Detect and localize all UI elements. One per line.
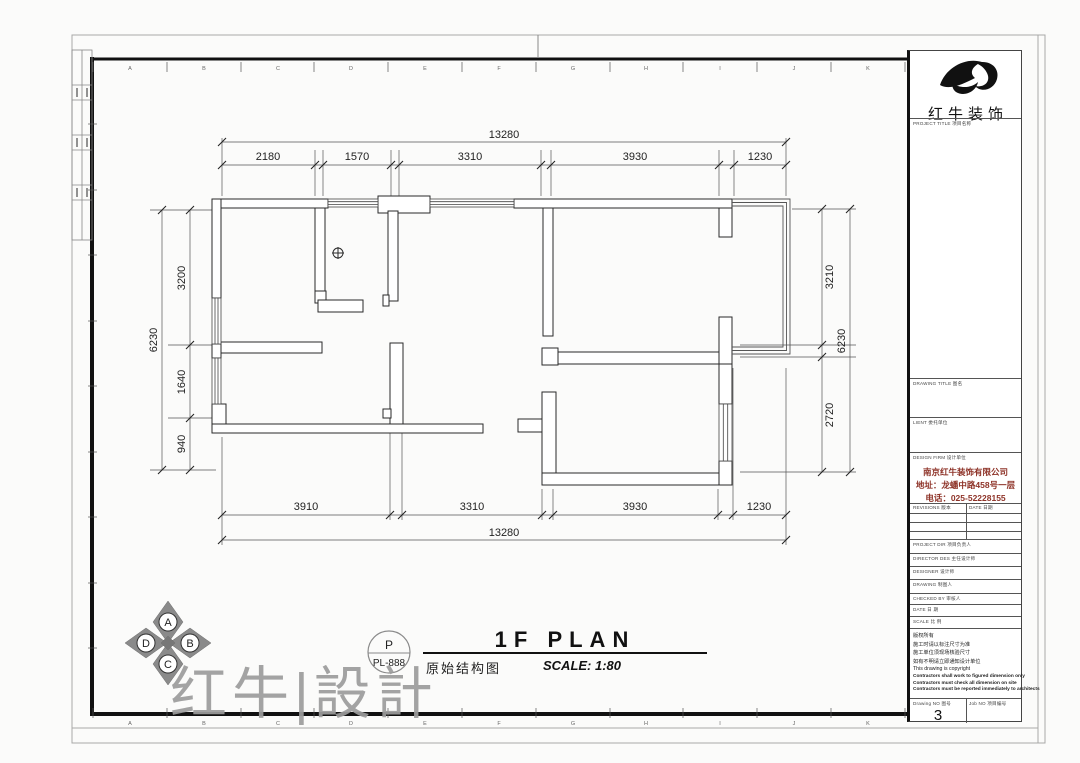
drawing-name: 原始结构图 — [426, 658, 501, 677]
window-top-1 — [328, 199, 378, 207]
dim-bottom-1: 3310 — [460, 501, 484, 513]
window-left-1 — [212, 298, 221, 344]
border-letters-top: A B C D E F G H I J K — [128, 66, 870, 72]
plan-scale: SCALE: 1:80 — [543, 658, 703, 673]
dim-top-2: 3310 — [458, 151, 482, 163]
svg-text:I: I — [719, 66, 721, 72]
dim-bottom-0: 3910 — [294, 501, 318, 513]
director-label: DIRECTOR DES 主任设计师 — [913, 556, 975, 562]
svg-text:E: E — [423, 66, 427, 72]
dim-top-0: 2180 — [256, 151, 280, 163]
svg-text:G: G — [571, 66, 575, 72]
company-name: 南京红牛装饰有限公司 — [910, 466, 1021, 478]
svg-text:J: J — [793, 721, 796, 727]
window-top-2 — [430, 199, 514, 207]
note-line: This drawing is copyright — [913, 666, 1021, 672]
watermark-text: 红牛|設計 — [170, 648, 438, 730]
dim-bottom-3: 1230 — [747, 501, 771, 513]
client-label: LIENT 委托单位 — [913, 420, 948, 426]
note-line: Contractors must be reported immediately… — [913, 687, 1021, 692]
note-line: 施工单位须现场核验尺寸 — [913, 649, 1021, 656]
company-address: 地址：龙蟠中路458号一层 — [910, 479, 1021, 491]
svg-text:I: I — [719, 721, 721, 727]
svg-text:H: H — [644, 66, 648, 72]
dim-right-1: 2720 — [824, 403, 836, 427]
svg-text:F: F — [497, 66, 501, 72]
dim-right-total: 6230 — [836, 329, 848, 353]
date-col-label: DATE 日期 — [969, 505, 993, 511]
drawing-title-label: DRAWING TITLE 图名 — [913, 381, 962, 387]
svg-text:F: F — [497, 721, 501, 727]
checked-label: CHECKED BY 审核人 — [913, 596, 961, 602]
svg-text:C: C — [276, 66, 280, 72]
project-dir-label: PROJECT DIR 项目负责人 — [913, 542, 971, 548]
window-lower-right — [719, 404, 732, 461]
job-no-label: Job NO 项目编号 — [969, 701, 1006, 707]
designer-label: DESIGNER 设计师 — [913, 569, 954, 575]
svg-text:G: G — [571, 721, 575, 727]
bull-logo-icon — [932, 55, 1002, 103]
window-left-2 — [212, 358, 221, 404]
compass-n-label: A — [164, 617, 172, 629]
svg-text:K: K — [866, 721, 870, 727]
note-line: Contractors shall work to figured dimens… — [913, 674, 1021, 679]
drawing-label: DRAWING 制图人 — [913, 582, 952, 588]
dim-top-4: 1230 — [748, 151, 772, 163]
walls — [212, 196, 732, 485]
svg-text:A: A — [128, 66, 132, 72]
note-line: 施工时请以标注尺寸为准 — [913, 641, 1021, 648]
title-block: 红牛装饰 PROJECT TITLE 项目名称 DRAWING TITLE 图名… — [907, 50, 1022, 722]
revisions-label: REVISIONS 版本 — [913, 505, 951, 511]
scale-label: SCALE 比 例 — [913, 619, 942, 625]
design-firm-label: DESIGN FIRM 设计单位 — [913, 455, 966, 461]
svg-text:H: H — [644, 721, 648, 727]
dim-top-total: 13280 — [489, 129, 520, 141]
note-line: 版权所有 — [913, 632, 1021, 639]
dim-left-2: 940 — [176, 435, 188, 453]
svg-text:B: B — [202, 66, 206, 72]
date-label: DATE 日 期 — [913, 607, 938, 613]
drawing-no-value: 3 — [910, 707, 966, 724]
revision-strip — [72, 50, 92, 240]
compass-w-label: D — [142, 638, 150, 650]
dim-right-0: 3210 — [824, 265, 836, 289]
balcony-glazing — [732, 199, 790, 354]
project-title-label: PROJECT TITLE 项目名称 — [913, 121, 971, 127]
svg-text:J: J — [793, 66, 796, 72]
note-line: 如有不明请立即通知设计单位 — [913, 658, 1021, 665]
dim-bottom-2: 3930 — [623, 501, 647, 513]
dim-left-1: 1640 — [176, 370, 188, 394]
note-line: Contractors must check all dimension on … — [913, 681, 1021, 686]
flue-symbol-icon — [332, 247, 344, 259]
cad-sheet: A B C D E F G H I J K A B C D E F G H I … — [0, 0, 1080, 763]
svg-text:A: A — [128, 721, 132, 727]
dim-left-0: 3200 — [176, 266, 188, 290]
dim-top-3: 3930 — [623, 151, 647, 163]
dimension-labels: 13280 2180 1570 3310 3930 1230 3910 3310… — [148, 129, 848, 539]
dim-top-1: 1570 — [345, 151, 369, 163]
dim-bottom-total: 13280 — [489, 527, 520, 539]
windows — [212, 199, 732, 461]
plan-title-underline — [423, 652, 707, 654]
svg-text:D: D — [349, 66, 353, 72]
dim-left-total: 6230 — [148, 328, 160, 352]
svg-text:K: K — [866, 66, 870, 72]
plan-title: 1F PLAN — [423, 627, 707, 653]
